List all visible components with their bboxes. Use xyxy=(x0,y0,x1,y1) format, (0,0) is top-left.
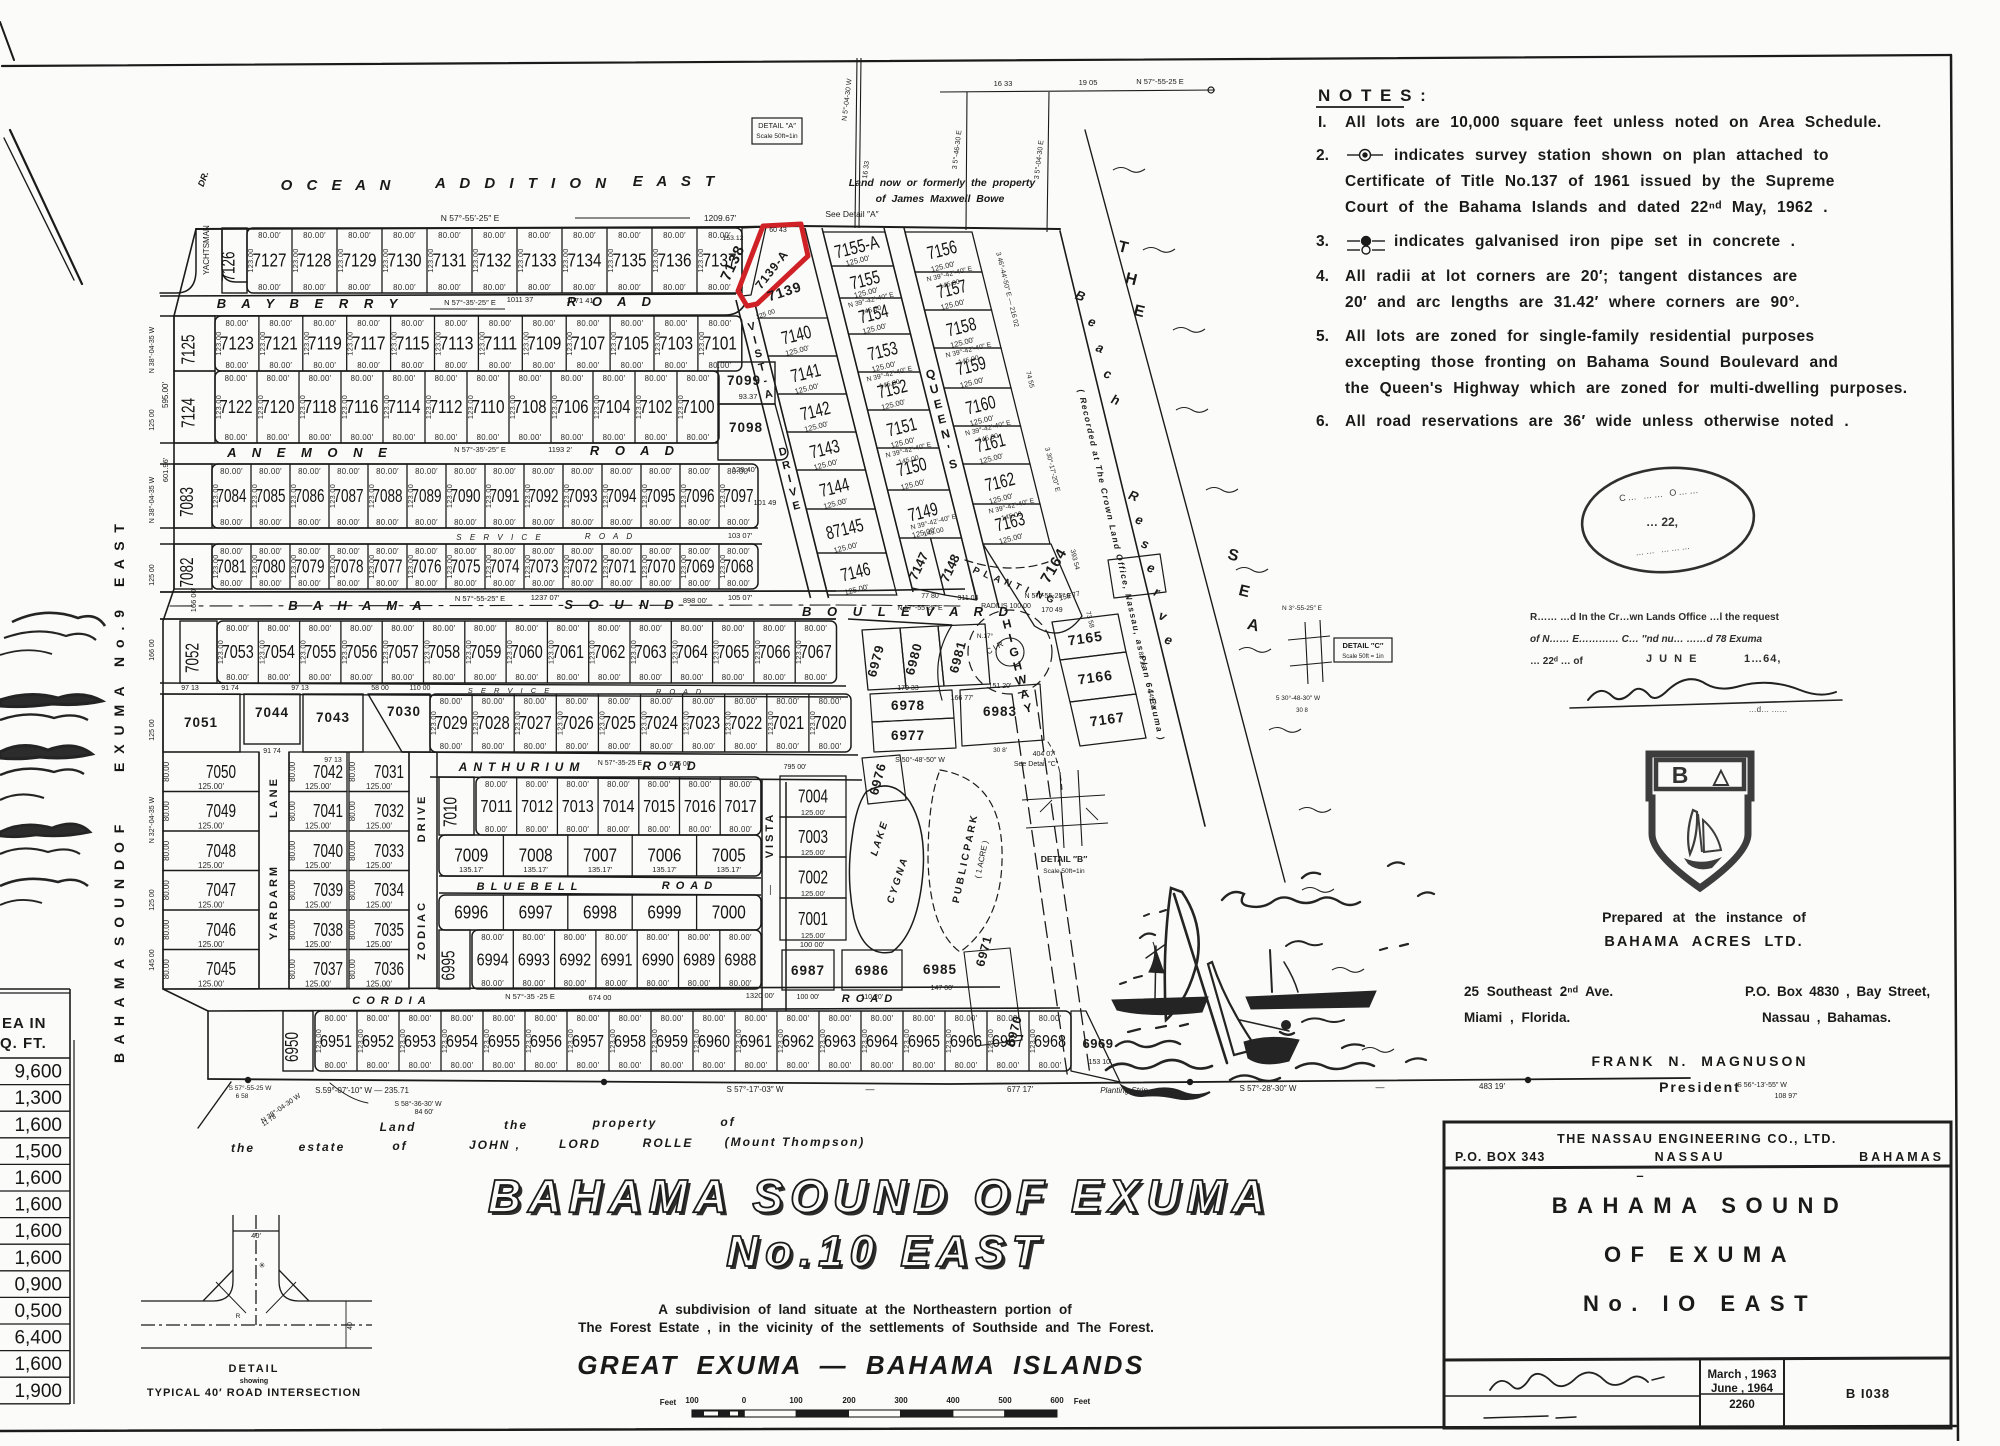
svg-text:125 00: 125 00 xyxy=(149,564,156,586)
svg-text:N 57°-55′-25″ E: N 57°-55′-25″ E xyxy=(441,213,500,223)
svg-text:123.00: 123.00 xyxy=(682,711,691,735)
svg-text:DRIVE: DRIVE xyxy=(416,794,428,843)
svg-text:123.00: 123.00 xyxy=(521,331,530,355)
svg-text:123.00: 123.00 xyxy=(505,640,514,664)
svg-text:123.00: 123.00 xyxy=(555,711,564,735)
svg-text:80.00′: 80.00′ xyxy=(519,374,542,383)
svg-text:7017: 7017 xyxy=(725,796,757,816)
svg-text:6992: 6992 xyxy=(559,950,591,970)
svg-text:of N…… E………… C… ″nd nu… ……d: of N…… E………… C… ″nd nu… ……d 78 Exuma xyxy=(1530,634,1762,645)
svg-text:B: B xyxy=(1672,762,1689,788)
svg-text:7072: 7072 xyxy=(568,556,598,577)
svg-text:7031: 7031 xyxy=(374,761,404,782)
svg-text:80.00′: 80.00′ xyxy=(445,361,468,370)
svg-text:125.00′: 125.00′ xyxy=(198,782,224,791)
svg-text:80.00′: 80.00′ xyxy=(763,624,786,633)
svg-text:6997: 6997 xyxy=(519,902,553,923)
svg-text:80.00′: 80.00′ xyxy=(474,673,497,682)
svg-text:80.00′: 80.00′ xyxy=(357,319,380,328)
svg-text:123.00: 123.00 xyxy=(679,554,688,578)
svg-text:80.00′: 80.00′ xyxy=(493,1014,516,1023)
svg-text:7107: 7107 xyxy=(571,333,605,354)
svg-text:7084: 7084 xyxy=(217,485,247,506)
svg-text:80.00′: 80.00′ xyxy=(393,231,416,240)
svg-text:123.00: 123.00 xyxy=(250,554,259,578)
svg-text:BAHAMAS: BAHAMAS xyxy=(1859,1150,1944,1164)
svg-text:80.00′: 80.00′ xyxy=(391,673,414,682)
svg-text:7042: 7042 xyxy=(313,761,343,782)
svg-text:123.00: 123.00 xyxy=(484,554,493,578)
svg-text:7085: 7085 xyxy=(256,485,286,506)
svg-text:80.00′: 80.00′ xyxy=(619,1014,642,1023)
svg-text:7071: 7071 xyxy=(607,556,637,577)
svg-text:80.00′: 80.00′ xyxy=(608,697,631,706)
svg-text:80.00′: 80.00′ xyxy=(535,1061,558,1070)
svg-text:80.00′: 80.00′ xyxy=(692,742,715,751)
svg-text:179 33: 179 33 xyxy=(897,685,919,692)
svg-text:80.00′: 80.00′ xyxy=(474,624,497,633)
svg-text:80.00′: 80.00′ xyxy=(391,624,414,633)
svg-text:123.00: 123.00 xyxy=(634,395,643,419)
svg-text:80.00′: 80.00′ xyxy=(445,319,468,328)
svg-text:80.00′: 80.00′ xyxy=(688,467,711,476)
svg-text:80.00′: 80.00′ xyxy=(225,374,248,383)
svg-text:123.00: 123.00 xyxy=(640,554,649,578)
svg-text:93.37: 93.37 xyxy=(739,392,758,401)
svg-text:7118: 7118 xyxy=(304,396,337,417)
svg-text:1,600: 1,600 xyxy=(14,1221,62,1242)
svg-text:80.00′: 80.00′ xyxy=(267,433,290,442)
svg-text:123.00: 123.00 xyxy=(692,1029,701,1053)
svg-text:91 74: 91 74 xyxy=(263,748,281,755)
svg-text:123.00: 123.00 xyxy=(734,1029,743,1053)
svg-text:ROLLE: ROLLE xyxy=(643,1136,694,1150)
svg-text:CORDIA: CORDIA xyxy=(352,995,431,1007)
svg-text:7004: 7004 xyxy=(798,786,828,807)
svg-text:300: 300 xyxy=(894,1396,908,1405)
svg-text:123.00: 123.00 xyxy=(482,1029,491,1053)
svg-text:123.00: 123.00 xyxy=(256,395,265,419)
svg-text:7034: 7034 xyxy=(374,879,404,900)
svg-text:123.00: 123.00 xyxy=(424,395,433,419)
svg-text:6989: 6989 xyxy=(683,950,715,970)
svg-text:123.00: 123.00 xyxy=(445,554,454,578)
svg-text:80.00′: 80.00′ xyxy=(523,979,546,988)
svg-text:80.00′: 80.00′ xyxy=(524,742,547,751)
svg-text:7020: 7020 xyxy=(814,712,847,733)
svg-text:S O U N D: S O U N D xyxy=(111,857,127,946)
svg-text:80.00′: 80.00′ xyxy=(610,518,633,527)
svg-text:7067: 7067 xyxy=(800,641,832,662)
svg-text:B I038: B I038 xyxy=(1846,1386,1890,1401)
svg-text:123.00: 123.00 xyxy=(712,640,721,664)
svg-text:125.00′: 125.00′ xyxy=(198,861,224,870)
svg-text:1,600: 1,600 xyxy=(14,1115,62,1136)
svg-text:123.00: 123.00 xyxy=(356,1029,365,1053)
svg-text:80.00′: 80.00′ xyxy=(528,283,551,292)
svg-text:80.00′: 80.00′ xyxy=(571,518,594,527)
svg-text:123.00: 123.00 xyxy=(609,331,618,355)
svg-text:7131: 7131 xyxy=(433,250,467,271)
svg-text:6999: 6999 xyxy=(647,902,681,923)
svg-text:7057: 7057 xyxy=(387,641,419,662)
svg-text:7006: 7006 xyxy=(647,845,681,866)
svg-text:7104: 7104 xyxy=(598,396,631,417)
svg-text:80.00′: 80.00′ xyxy=(681,673,704,682)
svg-text:Land now or formerly the: Land now or formerly the property xyxy=(849,177,1037,189)
svg-text:ROAD: ROAD xyxy=(842,993,898,1005)
svg-text:20′ and arc lengths are 3: 20′ and arc lengths are 31.42′ where cor… xyxy=(1345,294,1800,311)
svg-text:80.00′: 80.00′ xyxy=(689,825,712,834)
svg-text:6959: 6959 xyxy=(656,1031,688,1051)
svg-text:123.00: 123.00 xyxy=(588,640,597,664)
svg-text:80.00′: 80.00′ xyxy=(438,283,461,292)
svg-text:80.00′: 80.00′ xyxy=(605,979,628,988)
svg-text:80.00′: 80.00′ xyxy=(997,1061,1020,1070)
svg-text:7121: 7121 xyxy=(264,333,298,354)
svg-text:123.00: 123.00 xyxy=(477,331,486,355)
svg-text:84 60′: 84 60′ xyxy=(415,1109,435,1116)
svg-text:80.00′: 80.00′ xyxy=(483,231,506,240)
svg-text:All road reservations are: All road reservations are 36′ wide unles… xyxy=(1345,413,1849,430)
svg-text:101 49: 101 49 xyxy=(754,498,777,507)
svg-text:123.00: 123.00 xyxy=(566,1029,575,1053)
svg-text:the Queen's Highway which: the Queen's Highway which are zoned for … xyxy=(1345,380,1907,397)
svg-text:123.00: 123.00 xyxy=(440,1029,449,1053)
svg-text:125 00: 125 00 xyxy=(149,409,156,431)
svg-text:6993: 6993 xyxy=(518,950,550,970)
svg-text:2260: 2260 xyxy=(1729,1399,1755,1411)
svg-text:151 20′: 151 20′ xyxy=(989,683,1012,690)
svg-text:601.96′: 601.96′ xyxy=(161,457,170,482)
svg-text:7083: 7083 xyxy=(176,487,197,517)
svg-text:80.00′: 80.00′ xyxy=(645,374,668,383)
svg-text:2.: 2. xyxy=(1316,147,1329,164)
svg-text:97 13: 97 13 xyxy=(291,685,309,692)
svg-text:7051: 7051 xyxy=(184,715,218,730)
svg-text:1,600: 1,600 xyxy=(14,1248,62,1269)
svg-text:80.00: 80.00 xyxy=(348,761,357,782)
svg-text:7135: 7135 xyxy=(613,250,647,271)
svg-text:125.00′: 125.00′ xyxy=(305,901,331,910)
svg-text:80.00′: 80.00′ xyxy=(688,518,711,527)
svg-text:R…… …d In the Cr…wn Lands Offi: R…… …d In the Cr…wn Lands Office …l the … xyxy=(1530,612,1780,623)
svg-text:7000: 7000 xyxy=(712,902,746,923)
svg-text:80.00′: 80.00′ xyxy=(571,579,594,588)
svg-text:7109: 7109 xyxy=(527,333,561,354)
svg-text:0: 0 xyxy=(742,1396,747,1405)
svg-text:135.17′: 135.17′ xyxy=(652,865,677,874)
svg-text:80.00′: 80.00′ xyxy=(367,1014,390,1023)
svg-text:6986: 6986 xyxy=(855,963,889,978)
svg-text:DETAIL ″C″: DETAIL ″C″ xyxy=(1342,641,1383,650)
svg-text:80.00′: 80.00′ xyxy=(409,1061,432,1070)
svg-text:6 58: 6 58 xyxy=(236,1093,249,1100)
svg-text:404 07′: 404 07′ xyxy=(1033,751,1056,758)
svg-text:7091: 7091 xyxy=(490,485,520,506)
svg-text:80.00′: 80.00′ xyxy=(313,319,336,328)
svg-text:Prepared at the instance: Prepared at the instance of xyxy=(1602,909,1806,925)
svg-text:See Detail ″C″: See Detail ″C″ xyxy=(1014,761,1059,768)
svg-text:6987: 6987 xyxy=(791,963,825,978)
svg-text:80.00′: 80.00′ xyxy=(258,283,281,292)
svg-text:123.00: 123.00 xyxy=(211,484,220,508)
svg-text:B A H A M A: B A H A M A xyxy=(288,598,427,613)
svg-text:7014: 7014 xyxy=(603,796,635,816)
svg-text:123.00: 123.00 xyxy=(640,711,649,735)
svg-text:80.00′: 80.00′ xyxy=(481,979,504,988)
svg-text:80.00′: 80.00′ xyxy=(337,547,360,556)
svg-text:123.00: 123.00 xyxy=(676,395,685,419)
svg-text:123.00: 123.00 xyxy=(289,554,298,578)
svg-text:123.00: 123.00 xyxy=(346,331,355,355)
svg-text:123.00: 123.00 xyxy=(299,640,308,664)
svg-text:80.00′: 80.00′ xyxy=(225,433,248,442)
svg-text:80.00′: 80.00′ xyxy=(608,742,631,751)
svg-text:7111: 7111 xyxy=(483,333,517,354)
svg-text:I.: I. xyxy=(1318,114,1327,131)
svg-text:80.00′: 80.00′ xyxy=(619,1061,642,1070)
svg-text:E A S T: E A S T xyxy=(111,522,127,587)
svg-text:VISTA: VISTA xyxy=(764,812,776,859)
svg-text:The Forest Estate , in the: The Forest Estate , in the vicinity of t… xyxy=(578,1320,1154,1335)
svg-text:123.00: 123.00 xyxy=(406,484,415,508)
svg-text:80.00′: 80.00′ xyxy=(298,467,321,476)
svg-text:7049: 7049 xyxy=(206,800,236,821)
svg-text:N 57°-35′-25″ E: N 57°-35′-25″ E xyxy=(444,298,496,307)
svg-text:80.00′: 80.00′ xyxy=(220,579,243,588)
svg-text:7060: 7060 xyxy=(511,641,543,662)
svg-text:7133: 7133 xyxy=(523,250,557,271)
svg-text:80.00′: 80.00′ xyxy=(532,547,555,556)
svg-text:123.00: 123.00 xyxy=(516,248,525,272)
svg-text:Land: Land xyxy=(380,1120,417,1134)
svg-text:7007: 7007 xyxy=(583,845,617,866)
svg-text:80.00′: 80.00′ xyxy=(607,825,630,834)
svg-text:80.00′: 80.00′ xyxy=(493,467,516,476)
svg-text:Scale 50ft = 1in: Scale 50ft = 1in xyxy=(1342,654,1384,660)
svg-text:R O A D: R O A D xyxy=(585,532,635,541)
svg-text:6988: 6988 xyxy=(724,950,756,970)
svg-text:of: of xyxy=(392,1139,407,1153)
svg-text:7108: 7108 xyxy=(514,396,547,417)
svg-text:6,400: 6,400 xyxy=(14,1328,62,1349)
svg-text:7081: 7081 xyxy=(217,556,247,577)
svg-text:80.00′: 80.00′ xyxy=(564,933,587,942)
svg-text:125.00′: 125.00′ xyxy=(366,822,392,831)
svg-text:7026: 7026 xyxy=(561,712,594,733)
svg-text:80.00′: 80.00′ xyxy=(483,283,506,292)
svg-text:YARDARM: YARDARM xyxy=(268,864,280,940)
svg-text:6962: 6962 xyxy=(782,1031,814,1051)
svg-text:5.: 5. xyxy=(1316,328,1329,345)
svg-text:58 00: 58 00 xyxy=(371,685,389,692)
svg-text:80.00′: 80.00′ xyxy=(438,231,461,240)
svg-text:NASSAU: NASSAU xyxy=(1655,1150,1726,1164)
svg-text:123.00: 123.00 xyxy=(794,640,803,664)
svg-text:80.00′: 80.00′ xyxy=(440,742,463,751)
svg-text:123.00: 123.00 xyxy=(561,248,570,272)
svg-text:123.00: 123.00 xyxy=(381,640,390,664)
svg-text:80.00′: 80.00′ xyxy=(649,518,672,527)
svg-text:80.00′: 80.00′ xyxy=(648,825,671,834)
svg-text:80.00′: 80.00′ xyxy=(481,933,504,942)
svg-text:7122: 7122 xyxy=(220,396,253,417)
svg-text:80.00′: 80.00′ xyxy=(566,780,589,789)
svg-text:125.00′: 125.00′ xyxy=(366,861,392,870)
svg-text:80.00′: 80.00′ xyxy=(787,1014,810,1023)
svg-text:1,300: 1,300 xyxy=(14,1088,62,1109)
svg-text:7100: 7100 xyxy=(682,396,715,417)
svg-text:7030: 7030 xyxy=(387,704,421,719)
svg-text:80.00′: 80.00′ xyxy=(688,579,711,588)
svg-text:125.00′: 125.00′ xyxy=(305,861,331,870)
svg-text:123.00: 123.00 xyxy=(214,331,223,355)
svg-text:80.00′: 80.00′ xyxy=(708,283,731,292)
svg-text:153 10′: 153 10′ xyxy=(1089,1059,1112,1066)
svg-text:125.00′: 125.00′ xyxy=(801,931,826,940)
svg-text:indicates survey station sh: indicates survey station shown on plan a… xyxy=(1394,147,1829,164)
svg-text:80.00′: 80.00′ xyxy=(309,433,332,442)
svg-text:135.17′: 135.17′ xyxy=(459,865,484,874)
svg-text:E X U M A: E X U M A xyxy=(111,684,127,772)
svg-text:595.00′: 595.00′ xyxy=(161,382,170,408)
svg-text:80.00′: 80.00′ xyxy=(1039,1061,1062,1070)
svg-text:7080: 7080 xyxy=(256,556,286,577)
svg-text:123.00: 123.00 xyxy=(653,331,662,355)
svg-text:80.00′: 80.00′ xyxy=(337,467,360,476)
svg-text:7114: 7114 xyxy=(388,396,421,417)
svg-text:80.00′: 80.00′ xyxy=(703,1061,726,1070)
svg-text:N 38°-04-35 W: N 38°-04-35 W xyxy=(148,476,156,523)
svg-text:80.00′: 80.00′ xyxy=(776,742,799,751)
svg-text:123.00: 123.00 xyxy=(562,484,571,508)
svg-text:135.17′: 135.17′ xyxy=(717,865,742,874)
svg-text:7113: 7113 xyxy=(439,333,473,354)
svg-text:6983: 6983 xyxy=(983,704,1017,719)
svg-text:80.00′: 80.00′ xyxy=(955,1061,978,1070)
svg-text:123.00: 123.00 xyxy=(314,1029,323,1053)
svg-text:7129: 7129 xyxy=(343,250,377,271)
svg-text:DETAIL ″B″: DETAIL ″B″ xyxy=(1041,854,1088,864)
svg-text:123.00: 123.00 xyxy=(328,484,337,508)
svg-text:6998: 6998 xyxy=(583,902,617,923)
svg-text:100: 100 xyxy=(789,1396,803,1405)
svg-text:7116: 7116 xyxy=(346,396,379,417)
svg-text:7043: 7043 xyxy=(316,710,350,725)
svg-text:EA IN: EA IN xyxy=(2,1015,46,1032)
svg-text:of James Maxwell Bowe: of James Maxwell Bowe xyxy=(876,193,1005,205)
svg-text:6.: 6. xyxy=(1316,413,1329,430)
svg-text:123.00: 123.00 xyxy=(508,395,517,419)
svg-text:123.00: 123.00 xyxy=(640,484,649,508)
svg-text:80.00′: 80.00′ xyxy=(665,319,688,328)
svg-text:7059: 7059 xyxy=(469,641,501,662)
svg-text:80.00′: 80.00′ xyxy=(528,231,551,240)
svg-text:30 8′: 30 8′ xyxy=(993,747,1008,754)
svg-text:125 00: 125 00 xyxy=(149,889,156,911)
svg-text:7086: 7086 xyxy=(295,485,325,506)
svg-text:80.00′: 80.00′ xyxy=(351,374,374,383)
svg-text:80.00′: 80.00′ xyxy=(482,697,505,706)
svg-text:80.00′: 80.00′ xyxy=(571,547,594,556)
svg-text:80.00′: 80.00′ xyxy=(325,1014,348,1023)
svg-text:80.00′: 80.00′ xyxy=(649,579,672,588)
svg-text:7028: 7028 xyxy=(477,712,510,733)
svg-text:7005: 7005 xyxy=(712,845,746,866)
svg-text:80.00′: 80.00′ xyxy=(401,361,424,370)
svg-text:123.00: 123.00 xyxy=(523,484,532,508)
svg-text:80.00′: 80.00′ xyxy=(259,467,282,476)
svg-text:80.00′: 80.00′ xyxy=(433,624,456,633)
svg-text:7126: 7126 xyxy=(218,252,239,282)
svg-text:80.00′: 80.00′ xyxy=(493,1061,516,1070)
svg-text:7056: 7056 xyxy=(346,641,378,662)
svg-text:60 43: 60 43 xyxy=(769,227,787,234)
svg-text:123.00: 123.00 xyxy=(562,554,571,578)
svg-text:… 22,: … 22, xyxy=(1646,515,1678,529)
svg-text:BAHAMA SOUND: BAHAMA SOUND xyxy=(1552,1193,1849,1218)
svg-text:123.00: 123.00 xyxy=(471,248,480,272)
svg-text:80.00: 80.00 xyxy=(348,801,357,822)
svg-text:80.00′: 80.00′ xyxy=(647,979,670,988)
svg-text:7016: 7016 xyxy=(684,796,716,816)
svg-text:123.00: 123.00 xyxy=(592,395,601,419)
svg-text:125.00′: 125.00′ xyxy=(801,889,826,898)
svg-text:80.00′: 80.00′ xyxy=(367,1061,390,1070)
svg-text:1…64,: 1…64, xyxy=(1744,653,1781,665)
svg-text:80.00′: 80.00′ xyxy=(618,231,641,240)
svg-text:600: 600 xyxy=(1050,1396,1064,1405)
svg-text:80.00′: 80.00′ xyxy=(645,433,668,442)
svg-text:See Detail ″A″: See Detail ″A″ xyxy=(825,209,878,219)
svg-text:1,600: 1,600 xyxy=(14,1354,62,1375)
svg-text:President: President xyxy=(1659,1079,1741,1095)
svg-text:80.00′: 80.00′ xyxy=(561,374,584,383)
svg-text:7052: 7052 xyxy=(182,643,203,673)
svg-text:7097: 7097 xyxy=(724,485,754,506)
svg-text:6978: 6978 xyxy=(891,698,925,713)
svg-text:80.00′: 80.00′ xyxy=(727,518,750,527)
svg-text:6963: 6963 xyxy=(824,1031,856,1051)
svg-text:6955: 6955 xyxy=(488,1031,520,1051)
svg-text:7079: 7079 xyxy=(295,556,325,577)
svg-text:7040: 7040 xyxy=(313,840,343,861)
svg-text:80.00′: 80.00′ xyxy=(566,825,589,834)
svg-text:7003: 7003 xyxy=(798,826,828,847)
svg-text:125.00′: 125.00′ xyxy=(305,822,331,831)
svg-text:123.00: 123.00 xyxy=(718,554,727,578)
svg-text:6991: 6991 xyxy=(601,950,633,970)
svg-text:7027: 7027 xyxy=(519,712,552,733)
svg-text:80.00′: 80.00′ xyxy=(819,697,842,706)
svg-text:80.00′: 80.00′ xyxy=(661,1014,684,1023)
svg-text:7009: 7009 xyxy=(454,845,488,866)
svg-text:N 57°-35-25 E: N 57°-35-25 E xyxy=(598,759,643,767)
svg-text:N 57°-55-25″ E: N 57°-55-25″ E xyxy=(455,594,505,603)
svg-text:123.00: 123.00 xyxy=(546,640,555,664)
svg-text:80.00′: 80.00′ xyxy=(573,283,596,292)
svg-text:80.00′: 80.00′ xyxy=(603,433,626,442)
svg-text:80.00′: 80.00′ xyxy=(259,518,282,527)
svg-text:7128: 7128 xyxy=(298,250,332,271)
svg-text:80.00′: 80.00′ xyxy=(526,780,549,789)
svg-text:80.00′: 80.00′ xyxy=(692,697,715,706)
svg-text:6960: 6960 xyxy=(698,1031,730,1051)
svg-text:100 00′: 100 00′ xyxy=(797,994,820,1001)
svg-text:677 17′: 677 17′ xyxy=(1007,1085,1033,1094)
svg-text:80.00′: 80.00′ xyxy=(268,624,291,633)
